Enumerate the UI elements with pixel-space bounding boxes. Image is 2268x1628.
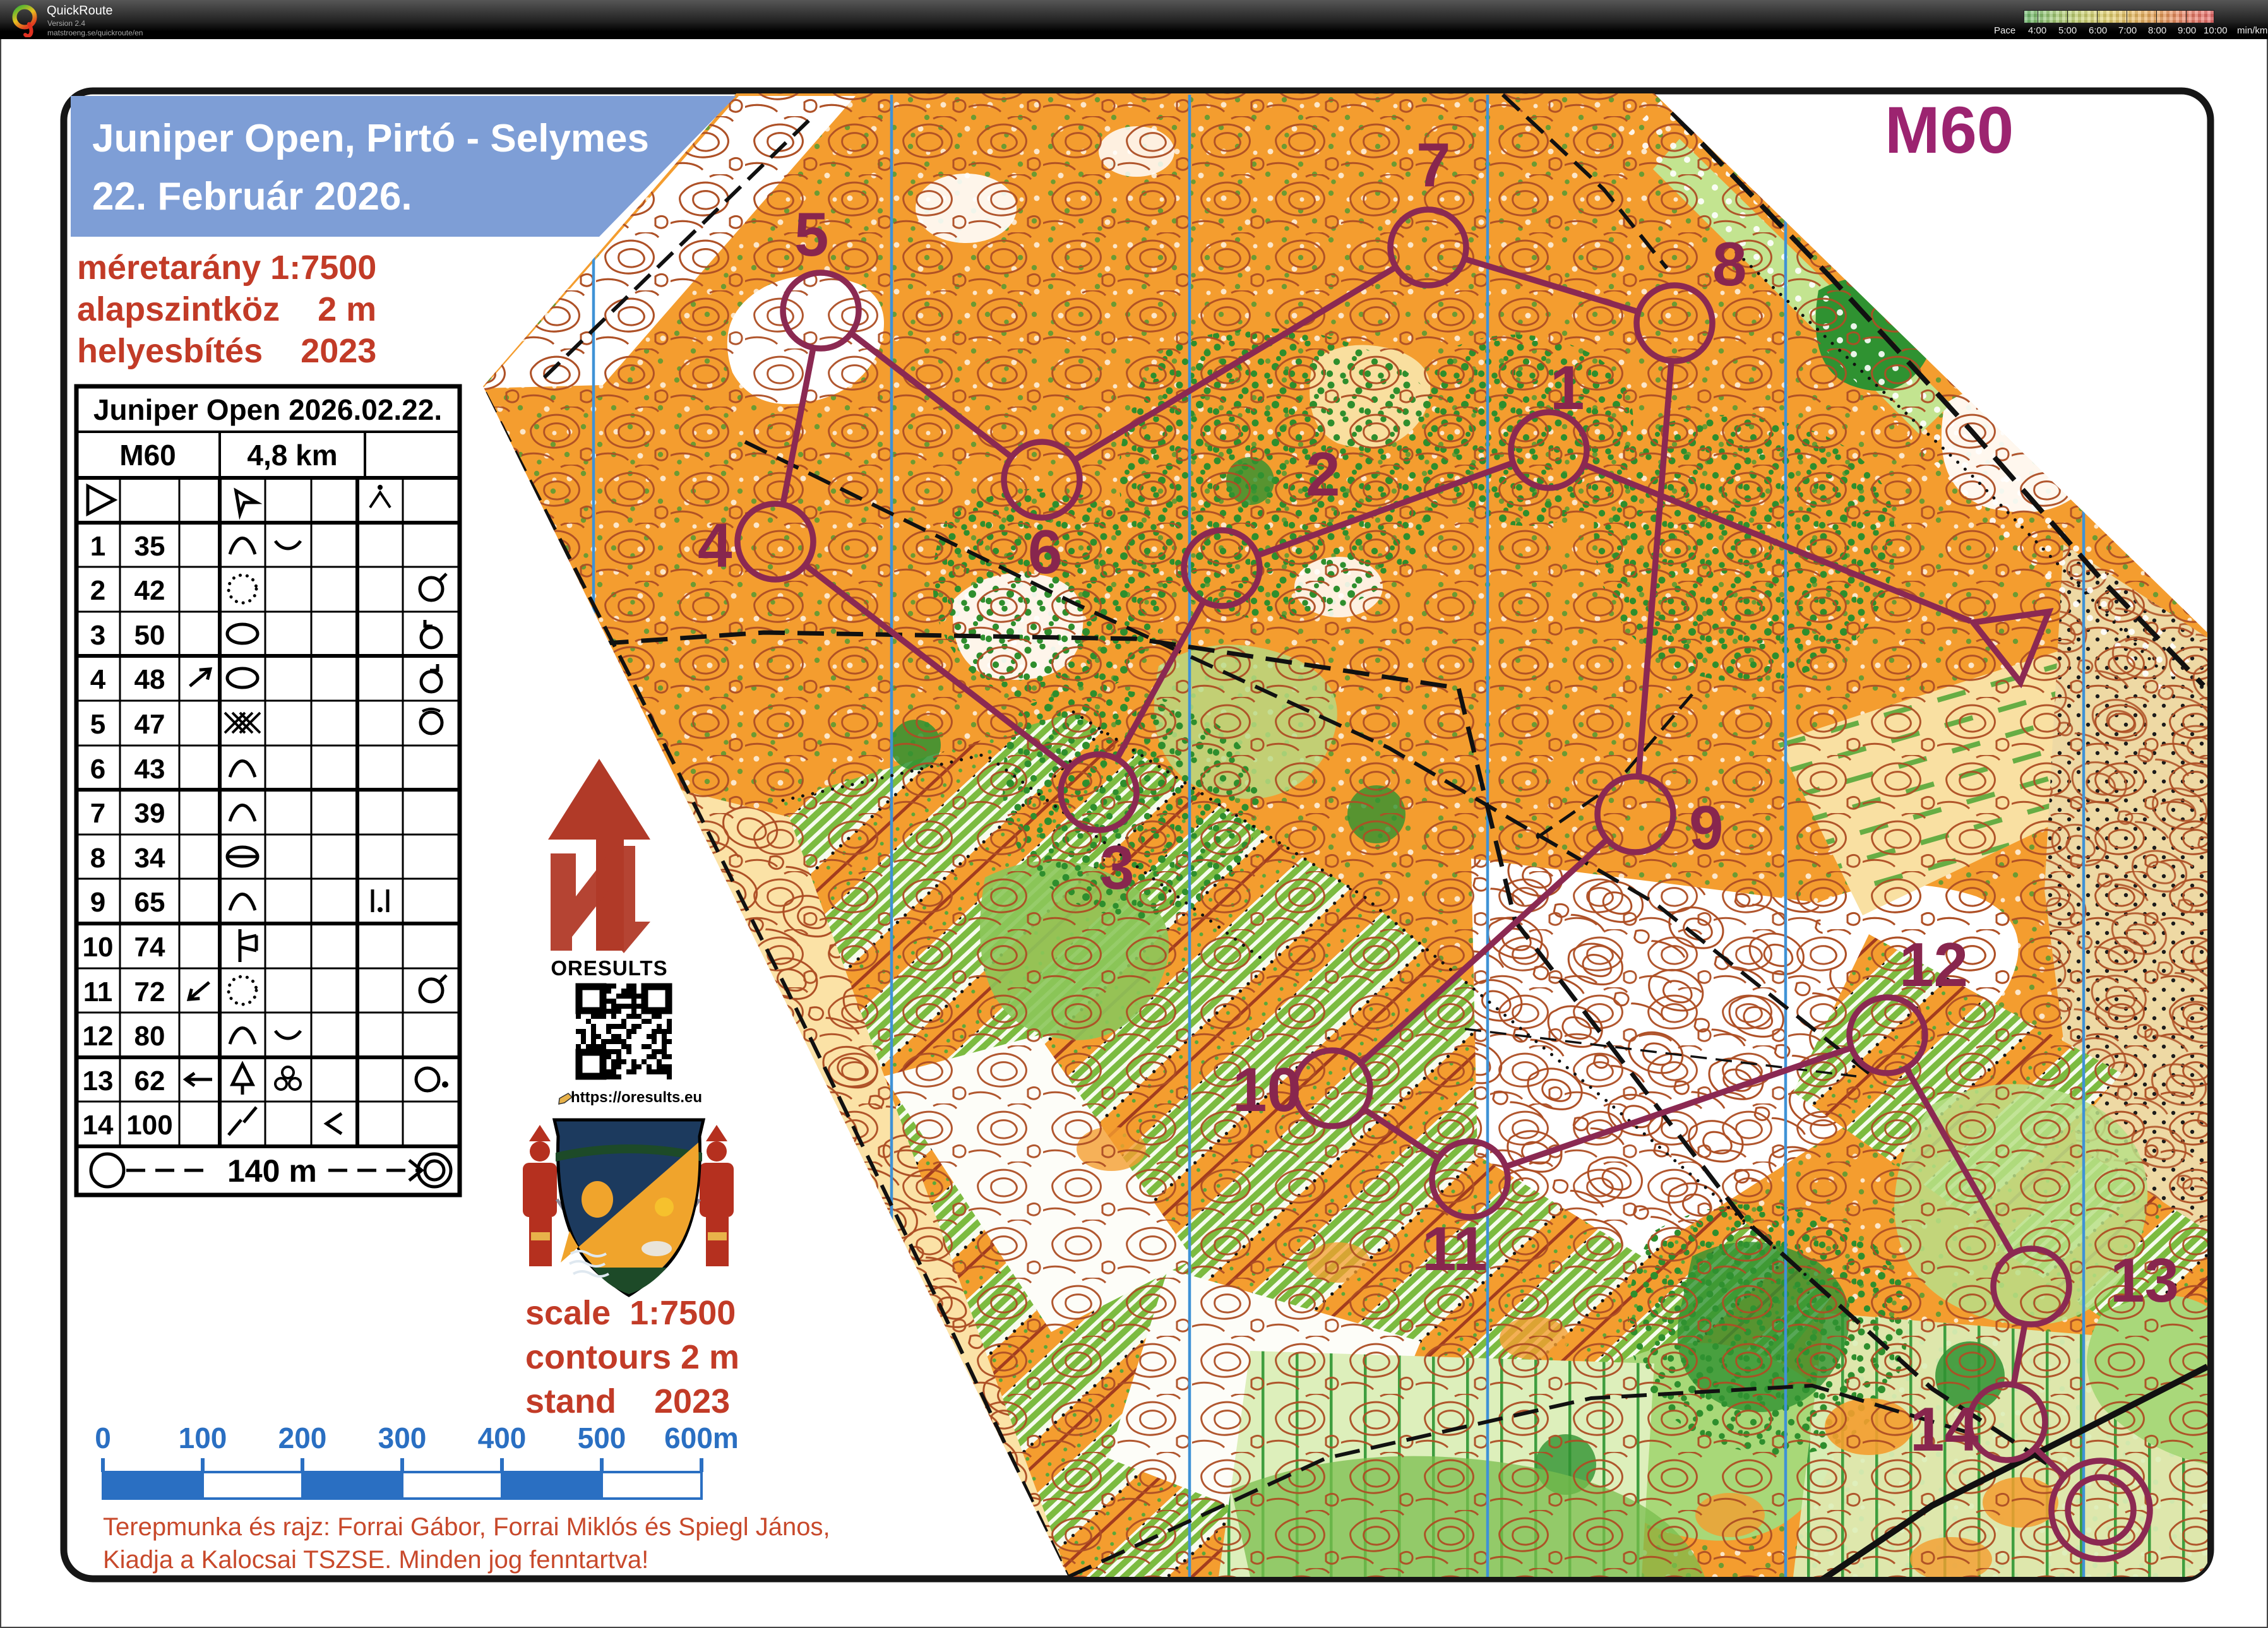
svg-text:12: 12 [1899,930,1968,999]
svg-text:8: 8 [1712,229,1747,299]
svg-text:2: 2 [90,575,105,606]
svg-text:140 m: 140 m [227,1153,317,1189]
svg-text:5: 5 [90,709,105,740]
svg-text:alapszintköz 2 m: alapszintköz 2 m [77,290,376,328]
svg-text:Kiadja a Kalocsai TSZSE. Minde: Kiadja a Kalocsai TSZSE. Minden jog fenn… [103,1546,648,1574]
svg-text:6: 6 [90,754,105,785]
svg-text:400: 400 [478,1422,527,1454]
svg-text:12: 12 [83,1021,114,1052]
svg-text:200: 200 [278,1422,327,1454]
svg-text:100: 100 [126,1110,172,1141]
svg-text:scale 1:7500: scale 1:7500 [525,1294,736,1332]
svg-text:39: 39 [134,798,165,829]
svg-text:14: 14 [1910,1394,1979,1464]
svg-text:1: 1 [1550,353,1585,422]
svg-text:5: 5 [794,199,829,269]
svg-text:43: 43 [134,754,165,785]
svg-text:9: 9 [90,887,105,918]
svg-text:50: 50 [134,620,165,651]
svg-text:13: 13 [2110,1245,2179,1315]
svg-text:7: 7 [90,798,105,829]
svg-text:ORESULTS: ORESULTS [551,956,667,980]
svg-text:1: 1 [90,531,105,562]
svg-text:Terepmunka és rajz: Forrai Gáb: Terepmunka és rajz: Forrai Gábor, Forrai… [103,1513,830,1541]
svg-text:35: 35 [134,531,165,562]
svg-text:Juniper Open 2026.02.22.: Juniper Open 2026.02.22. [93,393,442,426]
svg-text:helyesbítés 2023: helyesbítés 2023 [77,332,376,370]
svg-text:48: 48 [134,664,165,695]
svg-text:74: 74 [134,932,165,963]
svg-text:42: 42 [134,575,165,606]
svg-text:stand 2023: stand 2023 [525,1382,730,1420]
svg-text:600m: 600m [664,1422,739,1454]
svg-text:M60: M60 [119,439,176,472]
svg-text:22. Február 2026.: 22. Február 2026. [92,175,412,218]
svg-text:10: 10 [83,932,114,963]
svg-text:4,8 km: 4,8 km [247,439,337,472]
svg-text:100: 100 [179,1422,227,1454]
svg-text:2: 2 [1306,439,1340,509]
svg-text:80: 80 [134,1021,165,1052]
svg-text:72: 72 [134,977,165,1007]
svg-text:11: 11 [83,977,113,1007]
svg-text:M60: M60 [1885,93,2014,167]
svg-text:https://oresults.eu: https://oresults.eu [571,1089,702,1106]
svg-text:34: 34 [134,843,165,874]
svg-text:0: 0 [95,1422,111,1454]
svg-text:3: 3 [1100,833,1135,902]
svg-text:4: 4 [698,511,732,580]
svg-text:8: 8 [90,843,105,874]
svg-text:62: 62 [134,1066,165,1096]
svg-text:3: 3 [90,620,105,651]
svg-text:10: 10 [1232,1055,1301,1124]
svg-text:contours 2 m: contours 2 m [525,1338,739,1376]
svg-text:9: 9 [1689,793,1724,862]
svg-text:500: 500 [578,1422,626,1454]
svg-text:Juniper Open, Pirtó - Selymes: Juniper Open, Pirtó - Selymes [92,117,649,160]
svg-text:13: 13 [83,1066,114,1096]
svg-text:300: 300 [378,1422,427,1454]
svg-text:11: 11 [1422,1214,1488,1283]
svg-text:méretarány 1:7500: méretarány 1:7500 [77,249,376,287]
svg-text:4: 4 [90,664,106,695]
svg-text:7: 7 [1416,130,1451,199]
svg-text:65: 65 [134,887,165,918]
svg-text:47: 47 [134,709,165,740]
svg-text:6: 6 [1028,517,1063,586]
svg-text:14: 14 [83,1110,114,1141]
